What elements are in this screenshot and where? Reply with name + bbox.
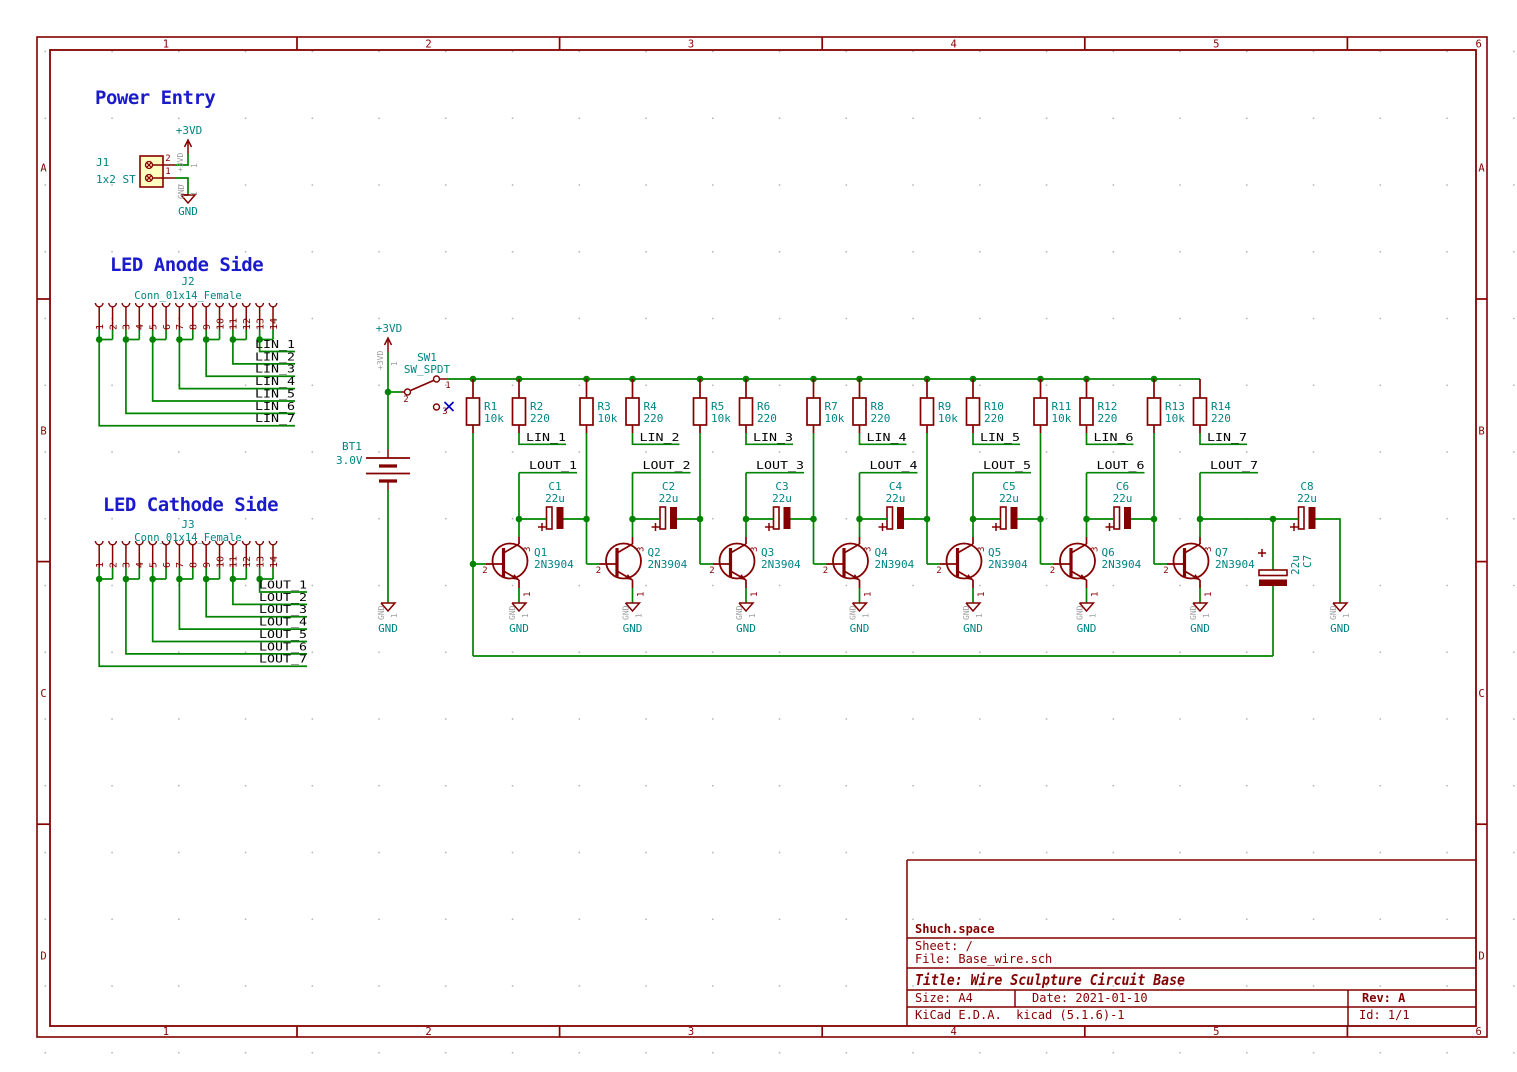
- grid-dot: [378, 251, 380, 253]
- stage-3: R510kR6220LIN_3LOUT_3C322u312Q32N3904GND…: [694, 376, 814, 635]
- resistor-body: [1148, 398, 1161, 425]
- grid-dot: [512, 985, 514, 987]
- grid-dot: [1513, 251, 1515, 253]
- resistor-value: 10k: [711, 412, 731, 425]
- grid-dot: [1446, 384, 1448, 386]
- grid-dot: [912, 251, 914, 253]
- grid-dot: [1046, 918, 1048, 920]
- gnd-net-label: GND: [850, 622, 870, 635]
- grid-dot: [1179, 585, 1181, 587]
- gnd-net-label: GND: [623, 622, 643, 635]
- grid-dot: [245, 184, 247, 186]
- grid-dot: [645, 451, 647, 453]
- female-pin-socket: [256, 303, 264, 307]
- grid-dot: [1112, 451, 1114, 453]
- transistor-value: 2N3904: [648, 558, 688, 571]
- grid-dot: [1513, 585, 1515, 587]
- connector-pin-number: 1: [165, 167, 170, 177]
- transistor-pin-number: 2: [1163, 566, 1168, 576]
- grid-dot: [44, 117, 46, 119]
- grid-dot: [44, 852, 46, 854]
- symbol-line: [1071, 544, 1087, 553]
- grid-dot: [1446, 852, 1448, 854]
- female-pin-socket: [242, 303, 250, 307]
- grid-dot: [245, 1052, 247, 1054]
- grid-dot: [245, 251, 247, 253]
- grid-dot: [245, 384, 247, 386]
- grid-dot: [311, 1052, 313, 1054]
- symbol-line: [504, 544, 520, 553]
- grid-dot: [512, 518, 514, 520]
- grid-dot: [845, 384, 847, 386]
- grid-dot: [311, 651, 313, 653]
- capacitor-value: 22u: [1113, 492, 1133, 505]
- grid-dot: [445, 184, 447, 186]
- gnd-hidden-pin-name: GND: [1076, 605, 1085, 620]
- connector-pin-number: 4: [135, 324, 146, 330]
- grid-dot: [245, 718, 247, 720]
- symbol-line: [731, 544, 747, 553]
- junction-dot: [583, 516, 590, 523]
- grid-dot: [378, 585, 380, 587]
- grid-dot: [979, 785, 981, 787]
- grid-dot: [712, 251, 714, 253]
- female-pin-socket: [256, 541, 264, 545]
- grid-dot: [445, 451, 447, 453]
- grid-dot: [1246, 384, 1248, 386]
- frame-row-label: B: [1478, 425, 1484, 437]
- grid-dot: [378, 651, 380, 653]
- grid-dot: [712, 318, 714, 320]
- grid-dot: [512, 117, 514, 119]
- net-label: LOUT_3: [756, 459, 804, 472]
- stage-5: R910kR10220LIN_5LOUT_5C522u312Q52N3904GN…: [921, 376, 1041, 635]
- gnd-hidden-pin-name: GND: [1189, 605, 1198, 620]
- grid-dot: [445, 117, 447, 119]
- grid-dot: [578, 785, 580, 787]
- gnd-hidden-pin-number: 1: [862, 613, 871, 618]
- connector-pin-number: 13: [255, 556, 266, 568]
- connector-pin-number: 7: [175, 562, 186, 568]
- grid-dot: [578, 585, 580, 587]
- grid-dot: [1179, 718, 1181, 720]
- female-pin-socket: [242, 541, 250, 545]
- grid-dot: [1246, 184, 1248, 186]
- grid-dot: [44, 384, 46, 386]
- grid-dot: [44, 585, 46, 587]
- vcc-hidden-pin-number: 1: [190, 163, 199, 168]
- resistor-value: 10k: [1052, 412, 1072, 425]
- net-label: LOUT_4: [259, 616, 307, 629]
- resistor-body: [921, 398, 934, 425]
- grid-dot: [1446, 918, 1448, 920]
- grid-dot: [1112, 852, 1114, 854]
- frame-column-label: 5: [1213, 39, 1219, 51]
- gnd-hidden-pin-name: GND: [377, 605, 386, 620]
- grid-dot: [779, 1052, 781, 1054]
- transistor-pin-number: 3: [637, 547, 647, 552]
- grid-dot: [779, 585, 781, 587]
- grid-dot: [44, 985, 46, 987]
- grid-dot: [1513, 451, 1515, 453]
- connector-j1-value: 1x2 ST: [96, 173, 136, 186]
- transistor-pin-number: 1: [977, 592, 987, 597]
- connector-pin-number: 10: [215, 318, 226, 330]
- grid-dot: [645, 1052, 647, 1054]
- grid-dot: [912, 318, 914, 320]
- grid-dot: [779, 918, 781, 920]
- net-label: LOUT_2: [643, 459, 691, 472]
- grid-dot: [1046, 184, 1048, 186]
- grid-dot: [178, 918, 180, 920]
- connector-pin-number: 9: [202, 562, 213, 568]
- grid-dot: [1446, 117, 1448, 119]
- grid-dot: [979, 852, 981, 854]
- wire: [1316, 519, 1341, 603]
- resistor-value: 10k: [598, 412, 618, 425]
- grid-dot: [645, 184, 647, 186]
- transistor-value: 2N3904: [761, 558, 801, 571]
- grid-dot: [1179, 785, 1181, 787]
- grid-dot: [378, 518, 380, 520]
- grid-dot: [1379, 718, 1381, 720]
- grid-dot: [1379, 918, 1381, 920]
- grid-dot: [645, 785, 647, 787]
- resistor-value: 220: [1098, 412, 1118, 425]
- section-heading-cathode: LED Cathode Side: [103, 494, 278, 516]
- grid-dot: [712, 184, 714, 186]
- frame-column-label: 6: [1476, 39, 1482, 51]
- grid-dot: [578, 718, 580, 720]
- grid-dot: [578, 1052, 580, 1054]
- grid-dot: [311, 384, 313, 386]
- gnd-hidden-pin-name: GND: [962, 605, 971, 620]
- frame-row-label: B: [40, 425, 46, 437]
- grid-dot: [712, 518, 714, 520]
- grid-dot: [845, 251, 847, 253]
- grid-dot: [1379, 585, 1381, 587]
- grid-dot: [178, 852, 180, 854]
- grid-dot: [512, 251, 514, 253]
- grid-dot: [445, 918, 447, 920]
- transistor-value: 2N3904: [1102, 558, 1142, 571]
- grid-dot: [845, 785, 847, 787]
- grid-dot: [1046, 718, 1048, 720]
- gnd-hidden-pin-name: GND: [735, 605, 744, 620]
- grid-dot: [1379, 184, 1381, 186]
- transistor-value: 2N3904: [988, 558, 1028, 571]
- grid-dot: [311, 117, 313, 119]
- grid-dot: [1313, 585, 1315, 587]
- connector-ref: J3: [181, 518, 194, 531]
- gnd-net-label: GND: [1077, 622, 1097, 635]
- grid-dot: [1179, 184, 1181, 186]
- transistor-pin-number: 2: [1050, 566, 1055, 576]
- transistor-pin-number: 3: [1091, 547, 1101, 552]
- grid-dot: [845, 985, 847, 987]
- grid-dot: [712, 651, 714, 653]
- grid-dot: [1313, 718, 1315, 720]
- grid-dot: [512, 184, 514, 186]
- grid-dot: [1246, 785, 1248, 787]
- transistor-pin-number: 1: [1204, 592, 1214, 597]
- transistor-pin-number: 2: [709, 566, 714, 576]
- net-label: LIN_1: [255, 338, 295, 351]
- grid-dot: [1446, 318, 1448, 320]
- grid-dot: [1513, 318, 1515, 320]
- transistor-pin-number: 1: [864, 592, 874, 597]
- grid-dot: [178, 651, 180, 653]
- grid-dot: [1179, 651, 1181, 653]
- net-label: LIN_3: [753, 431, 793, 444]
- capacitor-value: 22u: [1297, 492, 1317, 505]
- stage-1: R110kR2220LIN_1LOUT_1C122u312Q12N3904GND…: [467, 376, 587, 656]
- grid-dot: [1046, 585, 1048, 587]
- grid-dot: [512, 852, 514, 854]
- net-label: LIN_5: [980, 431, 1020, 444]
- grid-dot: [1313, 1052, 1315, 1054]
- frame-row-label: A: [1478, 163, 1485, 175]
- gnd-hidden-pin-name: GND: [1329, 605, 1338, 620]
- junction-dot: [924, 516, 931, 523]
- grid-dot: [779, 651, 781, 653]
- grid-dot: [512, 918, 514, 920]
- grid-dot: [645, 117, 647, 119]
- grid-dot: [912, 184, 914, 186]
- gnd-hidden-pin-number: 1: [635, 613, 644, 618]
- grid-dot: [111, 518, 113, 520]
- grid-dot: [845, 718, 847, 720]
- frame-row-label: D: [1478, 951, 1484, 963]
- grid-dot: [645, 852, 647, 854]
- grid-dot: [1513, 718, 1515, 720]
- grid-dot: [245, 852, 247, 854]
- grid-dot: [178, 451, 180, 453]
- grid-dot: [378, 184, 380, 186]
- resistor-value: 10k: [1165, 412, 1185, 425]
- net-label: LIN_2: [640, 431, 680, 444]
- grid-dot: [912, 451, 914, 453]
- grid-dot: [245, 585, 247, 587]
- grid-dot: [1046, 852, 1048, 854]
- net-label: LIN_6: [1094, 431, 1134, 444]
- grid-dot: [512, 718, 514, 720]
- grid-dot: [779, 384, 781, 386]
- grid-dot: [1446, 518, 1448, 520]
- grid-dot: [845, 184, 847, 186]
- resistor-body: [967, 398, 980, 425]
- grid-dot: [979, 585, 981, 587]
- gnd-hidden-pin-number: 1: [1089, 613, 1098, 618]
- connector-pin-number: 6: [162, 324, 173, 330]
- net-label: LOUT_1: [529, 459, 577, 472]
- frame-row-label: C: [40, 688, 46, 700]
- resistor-value: 220: [530, 412, 550, 425]
- female-pin-socket: [109, 303, 117, 307]
- grid-dot: [445, 985, 447, 987]
- title-block-title: Title: Wire Sculpture Circuit Base: [915, 971, 1185, 989]
- grid-dot: [1246, 852, 1248, 854]
- supply-section: +3VD+3VD1SW1SW_SPDT213GNDGND1BT13.0V: [336, 322, 454, 635]
- connector-pin-number: 9: [202, 324, 213, 330]
- grid-dot: [845, 918, 847, 920]
- grid-dot: [445, 1052, 447, 1054]
- grid-dot: [1379, 985, 1381, 987]
- net-label: LIN_6: [255, 400, 295, 413]
- female-pin-socket: [136, 303, 144, 307]
- gnd-hidden-pin-name: GND: [508, 605, 517, 620]
- grid-dot: [512, 384, 514, 386]
- capacitor-value: 22u: [659, 492, 679, 505]
- grid-dot: [111, 718, 113, 720]
- grid-dot: [979, 1052, 981, 1054]
- grid-dot: [1046, 518, 1048, 520]
- grid-dot: [445, 518, 447, 520]
- grid-dot: [378, 117, 380, 119]
- grid-dot: [1379, 651, 1381, 653]
- grid-dot: [1446, 184, 1448, 186]
- gnd-hidden-pin-number: 1: [975, 613, 984, 618]
- grid-dot: [779, 785, 781, 787]
- connector-pin-number: 4: [135, 562, 146, 568]
- resistor-value: 220: [644, 412, 664, 425]
- grid-dot: [1513, 184, 1515, 186]
- resistor-body: [513, 398, 526, 425]
- connector-pin-number: 1: [95, 324, 106, 330]
- switch-value: SW_SPDT: [404, 363, 451, 376]
- capacitor-plate-neg: [1124, 507, 1131, 529]
- grid-dot: [1446, 985, 1448, 987]
- grid-dot: [1313, 785, 1315, 787]
- inner-border: [50, 50, 1476, 1026]
- grid-dot: [1179, 251, 1181, 253]
- net-label: LIN_5: [255, 387, 295, 400]
- grid-dot: [1246, 117, 1248, 119]
- vcc-hidden-pin-number: 1: [390, 361, 399, 366]
- frame-column-label: 6: [1476, 1026, 1482, 1038]
- grid-dot: [178, 1052, 180, 1054]
- grid-dot: [311, 251, 313, 253]
- grid-dot: [1446, 1052, 1448, 1054]
- female-pin-socket: [176, 303, 184, 307]
- battery-ref: BT1: [342, 440, 362, 453]
- transistor-pin-number: 1: [1091, 592, 1101, 597]
- capacitor-plate-neg: [1309, 507, 1316, 529]
- grid-dot: [1112, 318, 1114, 320]
- grid-dot: [1379, 384, 1381, 386]
- transistor-value: 2N3904: [875, 558, 915, 571]
- grid-dot: [1246, 718, 1248, 720]
- grid-dot: [712, 718, 714, 720]
- capacitor-value: 22u: [886, 492, 906, 505]
- grid-dot: [111, 985, 113, 987]
- grid-dot: [578, 384, 580, 386]
- grid-dot: [578, 852, 580, 854]
- grid-dot: [378, 1052, 380, 1054]
- grid-dot: [1179, 1052, 1181, 1054]
- grid-dot: [1246, 1052, 1248, 1054]
- frame-column-label: 3: [688, 1026, 694, 1038]
- resistor-body: [1034, 398, 1047, 425]
- grid-dot: [1313, 251, 1315, 253]
- net-label: LIN_2: [255, 350, 295, 363]
- grid-dot: [512, 785, 514, 787]
- net-label: LOUT_3: [259, 603, 307, 616]
- junction-dot: [697, 516, 704, 523]
- grid-dot: [1112, 785, 1114, 787]
- gnd-net-label: GND: [1190, 622, 1210, 635]
- net-label: LOUT_7: [1210, 459, 1258, 472]
- capacitor-plate-neg: [897, 507, 904, 529]
- net-label: LOUT_5: [983, 459, 1031, 472]
- switch-pin-number: 1: [445, 381, 450, 391]
- grid-dot: [311, 985, 313, 987]
- connector-pin-number: 5: [148, 562, 159, 568]
- connector-pin-number: 2: [165, 154, 170, 164]
- grid-dot: [1513, 51, 1515, 53]
- female-pin-socket: [95, 303, 103, 307]
- gnd-hidden-pin-number: 1: [190, 191, 199, 196]
- grid-dot: [1179, 852, 1181, 854]
- grid-dot: [311, 918, 313, 920]
- grid-dot: [445, 718, 447, 720]
- gnd-hidden-pin-number: 1: [1202, 613, 1211, 618]
- gnd-hidden-pin-name: GND: [849, 605, 858, 620]
- grid-dot: [245, 651, 247, 653]
- resistor-body: [807, 398, 820, 425]
- grid-dot: [1046, 318, 1048, 320]
- junction-dot: [810, 516, 817, 523]
- grid-dot: [1446, 451, 1448, 453]
- grid-dot: [44, 1052, 46, 1054]
- grid-dot: [44, 184, 46, 186]
- grid-dot: [1313, 451, 1315, 453]
- grid-dot: [645, 318, 647, 320]
- connector-pin-number: 11: [229, 556, 240, 568]
- vcc-hidden-pin-name: +3VD: [176, 153, 185, 172]
- net-label: LOUT_6: [259, 640, 307, 653]
- capacitor-value: 22u: [772, 492, 792, 505]
- gnd-hidden-pin-number: 1: [1342, 613, 1351, 618]
- grid-dot: [845, 852, 847, 854]
- frame-column-label: 3: [688, 39, 694, 51]
- grid-dot: [845, 651, 847, 653]
- grid-dot: [1179, 918, 1181, 920]
- resistor-body: [580, 398, 593, 425]
- frame-row-label: C: [1478, 688, 1484, 700]
- capacitor-value: 22u: [545, 492, 565, 505]
- grid-dot: [111, 117, 113, 119]
- grid-dot: [1513, 117, 1515, 119]
- grid-dot: [245, 518, 247, 520]
- gnd-net-label: GND: [378, 622, 398, 635]
- grid-dot: [712, 117, 714, 119]
- schematic-canvas: 112233445566AABBCCDDShuch.spaceSheet: /F…: [0, 0, 1517, 1072]
- net-label: LOUT_2: [259, 591, 307, 604]
- net-label: LIN_4: [255, 375, 295, 388]
- female-pin-socket: [95, 541, 103, 545]
- grid-dot: [178, 718, 180, 720]
- grid-dot: [445, 251, 447, 253]
- transistor-pin-number: 3: [750, 547, 760, 552]
- gnd-hidden-pin-number: 1: [748, 613, 757, 618]
- grid-dot: [111, 585, 113, 587]
- grid-dot: [1313, 184, 1315, 186]
- grid-dot: [1446, 585, 1448, 587]
- transistor-pin-number: 3: [1204, 547, 1214, 552]
- resistor-value: 220: [984, 412, 1004, 425]
- grid-dot: [912, 651, 914, 653]
